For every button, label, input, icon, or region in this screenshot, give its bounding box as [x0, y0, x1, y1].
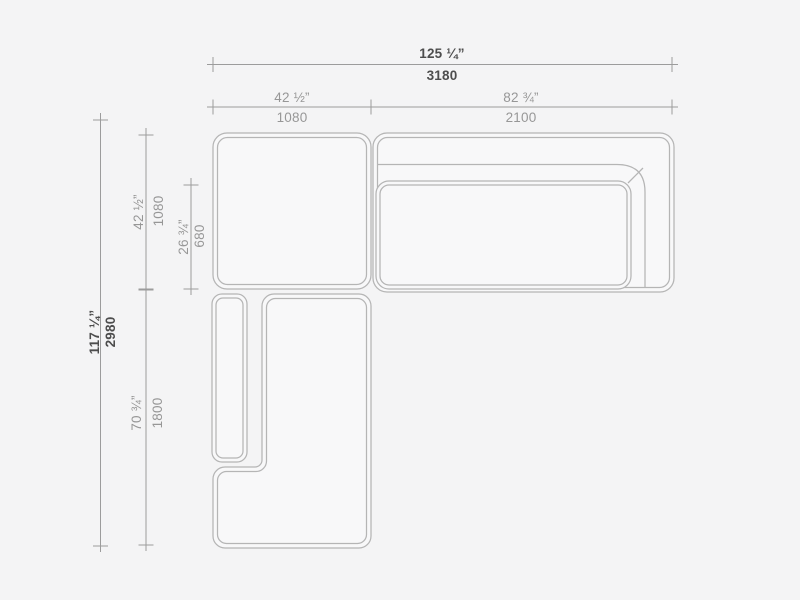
label-corner-depth-mm: 1080 [151, 196, 166, 227]
label-corner-width-inches: 42 ½” [274, 90, 310, 105]
chaise-module [212, 294, 371, 548]
label-overall-width-inches: 125 ¼” [419, 46, 464, 61]
label-overall-depth-mm: 2980 [103, 317, 118, 348]
label-chaise-length-inches: 70 ¾” [129, 395, 144, 431]
label-corner-depth-inches: 42 ½” [131, 194, 146, 230]
label-sofa-width-mm: 2100 [506, 110, 537, 125]
label-overall-depth-inches: 117 ¼” [87, 310, 102, 355]
drawing-background [0, 0, 800, 600]
sofa-seat-cushion [376, 181, 631, 289]
label-seat-depth-inches: 26 ¾” [176, 219, 191, 255]
label-corner-width-mm: 1080 [277, 110, 308, 125]
chaise-armrest-outline [212, 294, 247, 462]
label-chaise-length-mm: 1800 [150, 398, 165, 429]
corner-unit-outline [213, 133, 371, 289]
sofa-dimension-drawing: 125 ¼” 3180 117 ¼” 2980 42 ½” 1080 82 ¾”… [0, 0, 800, 600]
corner-unit [213, 133, 371, 289]
label-sofa-width-inches: 82 ¾” [503, 90, 539, 105]
label-seat-depth-mm: 680 [192, 224, 207, 247]
sofa-module [373, 133, 674, 292]
label-overall-width-mm: 3180 [427, 68, 458, 83]
